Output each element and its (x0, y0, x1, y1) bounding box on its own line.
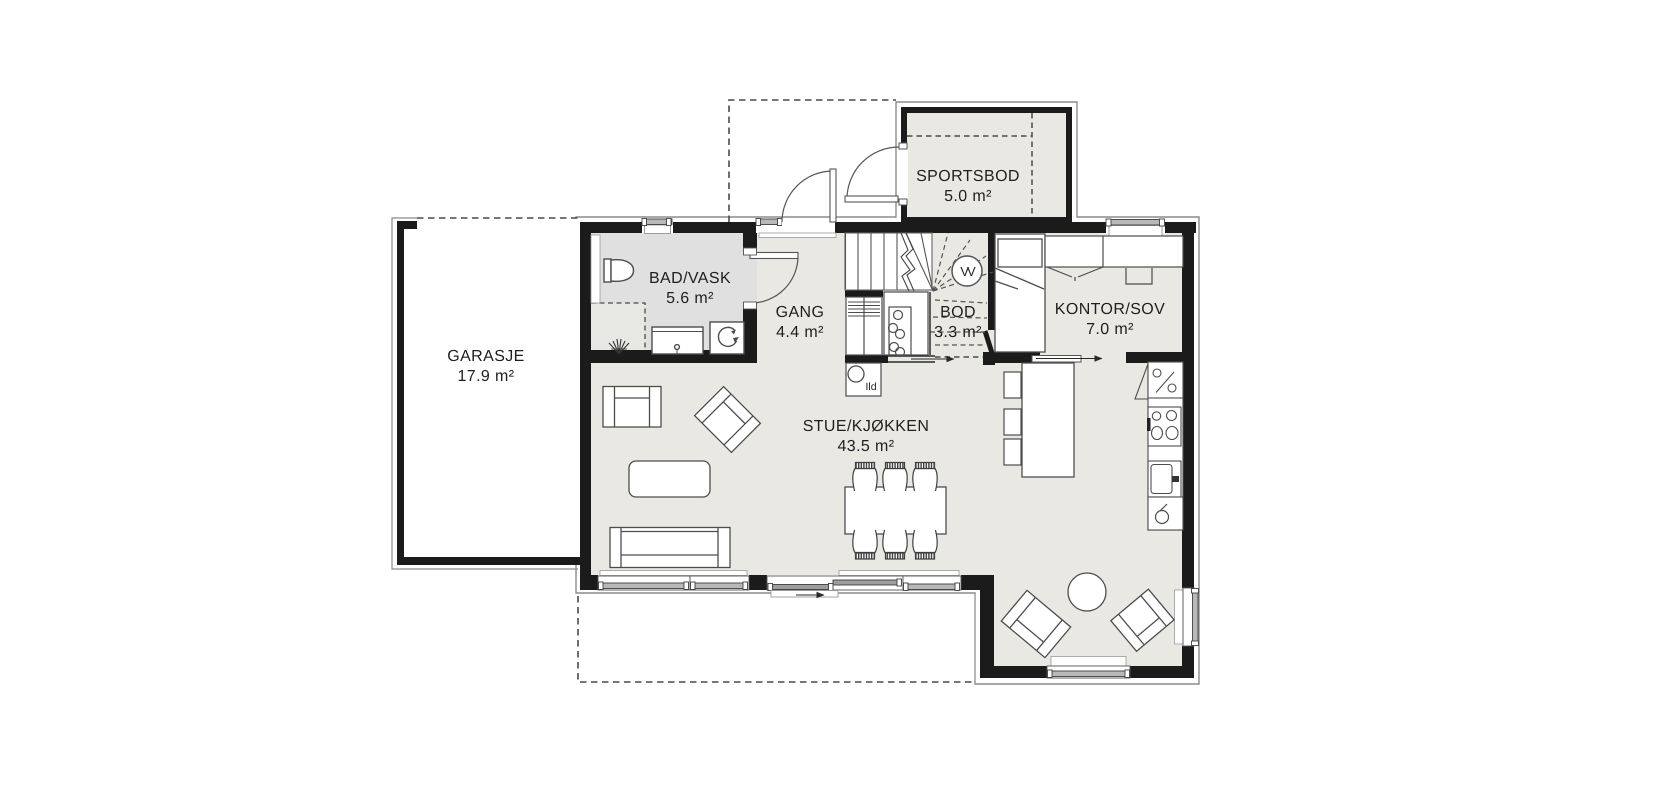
svg-text:5.0 m²: 5.0 m² (944, 188, 992, 205)
svg-text:7.0 m²: 7.0 m² (1086, 321, 1134, 338)
svg-text:VV: VV (960, 264, 976, 279)
svg-text:SPORTSBOD: SPORTSBOD (916, 168, 1020, 185)
svg-text:5.6 m²: 5.6 m² (666, 290, 714, 307)
svg-text:3.3 m²: 3.3 m² (934, 324, 982, 341)
svg-text:Ild: Ild (865, 381, 876, 393)
svg-text:4.4 m²: 4.4 m² (776, 324, 824, 341)
svg-text:GANG: GANG (776, 304, 825, 321)
svg-text:17.9 m²: 17.9 m² (457, 368, 514, 385)
svg-text:STUE/KJØKKEN: STUE/KJØKKEN (803, 418, 930, 435)
svg-text:GARASJE: GARASJE (447, 348, 525, 365)
svg-text:43.5 m²: 43.5 m² (837, 438, 894, 455)
svg-text:KONTOR/SOV: KONTOR/SOV (1055, 301, 1165, 318)
svg-text:BOD: BOD (940, 304, 976, 321)
svg-text:BAD/VASK: BAD/VASK (649, 270, 731, 287)
